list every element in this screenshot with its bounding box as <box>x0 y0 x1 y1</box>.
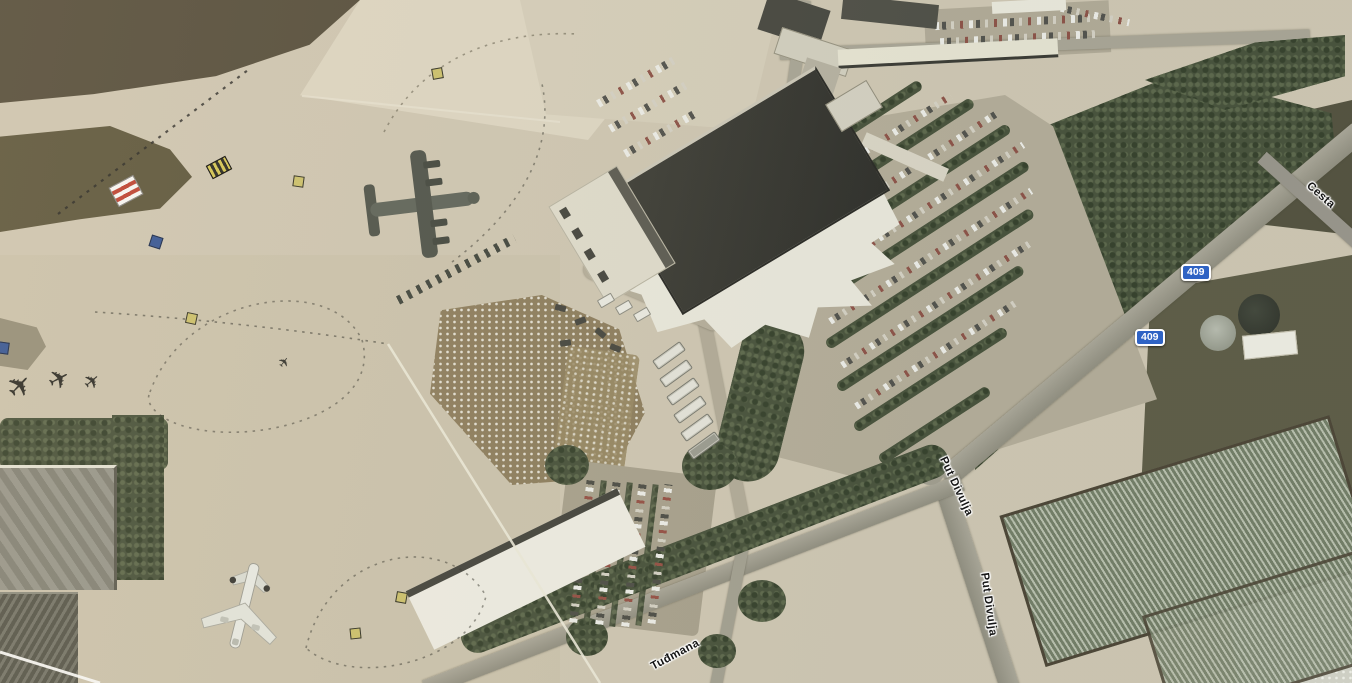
yellow-ground-marker <box>395 591 408 604</box>
blue-ground-marker <box>0 341 10 355</box>
yellow-ground-marker <box>292 175 304 187</box>
yellow-ground-marker <box>185 312 198 325</box>
gate-block <box>597 270 609 283</box>
gate-block <box>559 207 571 220</box>
satellite-map-canvas[interactable]: ✈ ✈ ✈ ✈ 409 409 Put Divulja Put Divulja … <box>0 0 1352 683</box>
route-shield-409: 409 <box>1181 264 1211 281</box>
gate-block <box>584 248 596 261</box>
route-shield-409: 409 <box>1135 329 1165 346</box>
yellow-ground-marker <box>431 67 444 80</box>
yellow-ground-marker <box>349 627 361 639</box>
gate-block <box>571 227 583 240</box>
military-transport-aircraft <box>356 141 493 267</box>
